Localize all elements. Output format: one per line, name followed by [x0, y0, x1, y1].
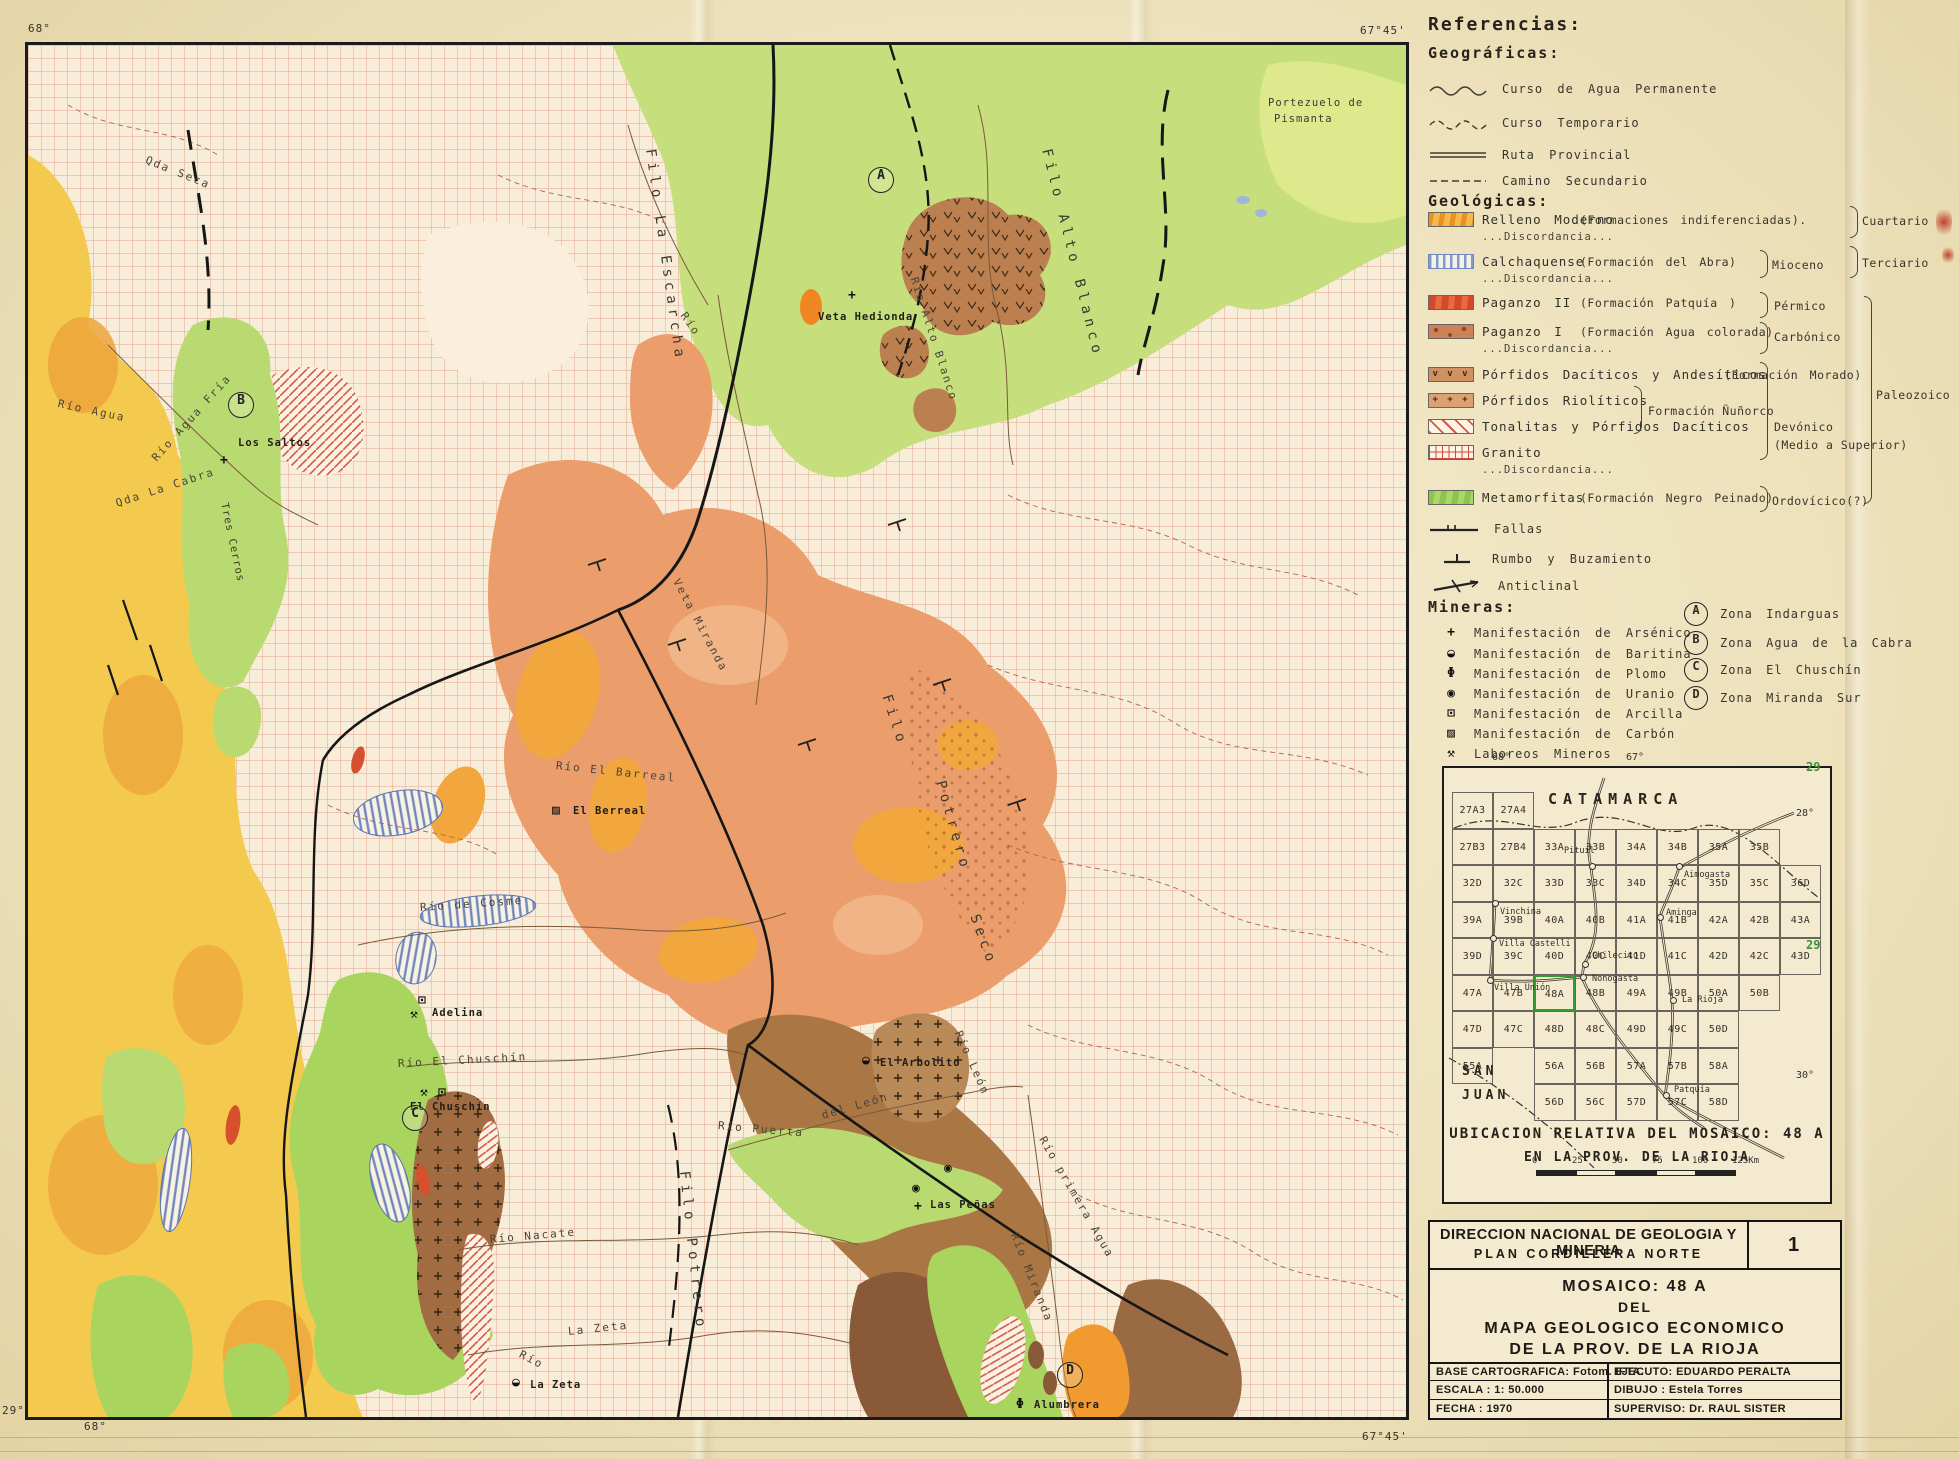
- index-cell-58A: 58A: [1698, 1048, 1739, 1085]
- map-mine-symbol: ⊡: [438, 1085, 446, 1100]
- zone-a-circle: A: [1684, 602, 1708, 626]
- map-mine-symbol: ⚒: [420, 1085, 428, 1100]
- clay-box-icon: ⊡: [1440, 706, 1462, 721]
- escala: ESCALA : 1: 50.000: [1436, 1384, 1544, 1396]
- index-cell-48C: 48C: [1575, 1011, 1616, 1048]
- legend-title: Referencias:: [1428, 14, 1582, 35]
- riolitico-swatch: [1428, 393, 1474, 408]
- legend-unit-dacitico: Pórfidos Dacíticos y Andesíticos(Formaci…: [1428, 367, 1959, 384]
- barite-halfcircle-icon: ◒: [1440, 646, 1462, 661]
- legend-item-anticlinal: Anticlinal: [1432, 575, 1580, 593]
- map-label: Veta Miranda: [670, 576, 730, 673]
- discordance-note: ...Discordancia...: [1482, 231, 1614, 243]
- map-label: El Berreal: [573, 805, 646, 817]
- map-label: Qda Seca: [144, 153, 213, 191]
- age-mioceno: Mioceno: [1772, 258, 1824, 272]
- map-mine-symbol: ◉: [944, 1161, 952, 1176]
- title-block: DIRECCION NACIONAL DE GEOLOGIA Y MINERIA…: [1428, 1220, 1842, 1420]
- dashed-line-icon: [1428, 174, 1490, 188]
- map-label: Tres Cerros: [218, 502, 246, 583]
- map-label: Seco: [966, 912, 999, 968]
- legend-zone-c: CZona El Chuschín: [1684, 658, 1862, 676]
- index-cell-57B: 57B: [1657, 1048, 1698, 1085]
- divider: [1430, 1362, 1840, 1364]
- city-dot-Chilecito: [1582, 961, 1589, 968]
- city-label: Vinchina: [1500, 907, 1541, 917]
- scalebar-tick: 100: [1692, 1156, 1708, 1166]
- index-cell-42A: 42A: [1698, 902, 1739, 939]
- legend-zone-a: AZona Indarguas: [1684, 602, 1840, 620]
- index-coordinate: 28°: [1796, 808, 1814, 819]
- index-cell-32D: 32D: [1452, 865, 1493, 902]
- map-label: Río Miranda: [1008, 1231, 1056, 1324]
- scalebar-segment: [1656, 1170, 1696, 1176]
- scalebar-tick: 50: [1612, 1156, 1623, 1166]
- discordance-note: ...Discordancia...: [1482, 273, 1614, 285]
- metamorfita-swatch: [1428, 490, 1474, 505]
- map-mine-symbol: Φ: [1016, 1397, 1024, 1412]
- map-zone-d: D: [1057, 1362, 1083, 1388]
- index-coordinate: 30°: [1796, 1070, 1814, 1081]
- map-title-main: MAPA GEOLOGICO ECONOMICO: [1430, 1320, 1840, 1338]
- era-paleozoico: Paleozoico: [1876, 388, 1950, 402]
- location-index-map: 27A327A427B327B433A33B34A34B35A35B32D32C…: [1442, 766, 1832, 1204]
- wavy-solid-line-icon: [1428, 82, 1490, 96]
- arsenic-cross-icon: +: [1440, 625, 1462, 640]
- index-cell-27B4: 27B4: [1493, 829, 1534, 866]
- map-label: Potrero: [932, 779, 973, 874]
- legend-zone-d: DZona Miranda Sur: [1684, 686, 1862, 704]
- strike-dip-icon: [1440, 552, 1480, 566]
- map-zone-b: B: [228, 392, 254, 418]
- index-coordinate: 67°: [1626, 752, 1644, 763]
- index-cell-56D: 56D: [1534, 1084, 1575, 1121]
- map-label: Adelina: [432, 1007, 483, 1019]
- index-cell-47D: 47D: [1452, 1011, 1493, 1048]
- index-cell-41C: 41C: [1657, 938, 1698, 975]
- discordance-note: ...Discordancia...: [1482, 464, 1614, 476]
- age-ordovicico: Ordovícico(?): [1772, 494, 1869, 508]
- era-brace: [1864, 296, 1872, 504]
- city-dot-Aimogasta: [1676, 863, 1683, 870]
- index-cell-56C: 56C: [1575, 1084, 1616, 1121]
- legend-geographic-title: Geográficas:: [1428, 44, 1560, 62]
- map-label: Río: [517, 1348, 546, 1372]
- index-cell-42C: 42C: [1739, 938, 1780, 975]
- map-label: El Arbolito: [880, 1057, 961, 1069]
- age-carbonico: Carbónico: [1774, 330, 1841, 344]
- scalebar-tick: 0: [1532, 1156, 1537, 1166]
- index-cell-27A3: 27A3: [1452, 792, 1493, 829]
- tonalita-swatch: [1428, 419, 1474, 434]
- map-mine-symbol: ◉: [912, 1181, 920, 1196]
- legend-item-curso-temporario: Curso Temporario: [1428, 112, 1640, 130]
- region-label: CATAMARCA: [1548, 790, 1683, 808]
- index-cell-57D: 57D: [1616, 1084, 1657, 1121]
- index-cell-42B: 42B: [1739, 902, 1780, 939]
- fault-line-icon: [1428, 522, 1482, 536]
- legend-item-carbon: ▨Manifestación de Carbón: [1440, 723, 1675, 741]
- map-title-del: DEL: [1430, 1299, 1840, 1315]
- map-label: Veta Hedionda: [818, 311, 913, 323]
- scalebar-segment: [1696, 1170, 1736, 1176]
- scalebar-tick: 75: [1652, 1156, 1663, 1166]
- legend-item-plomo: ΦManifestación de Plomo: [1440, 663, 1667, 681]
- map-title-mosaico: MOSAICO: 48 A: [1430, 1278, 1840, 1296]
- granito-swatch: [1428, 445, 1474, 460]
- index-cell-50A: 50A: [1698, 975, 1739, 1012]
- map-label: Río Agua Fría: [149, 372, 234, 464]
- map-label: Portezuelo de: [1268, 97, 1363, 109]
- map-label: Qda La Cabra: [114, 465, 216, 509]
- index-cell-35A: 35A: [1698, 829, 1739, 866]
- relleno-swatch: [1428, 212, 1474, 227]
- index-cell-33C: 33C: [1575, 865, 1616, 902]
- city-label: La Rioja: [1682, 995, 1723, 1005]
- legend-item-laboreos: ⚒Laboreos Mineros: [1440, 743, 1612, 761]
- legend-item-camino-secundario: Camino Secundario: [1428, 170, 1648, 188]
- map-mine-symbol: ▨: [552, 803, 560, 818]
- index-cell-49C: 49C: [1657, 1011, 1698, 1048]
- era-cuartario: Cuartario: [1862, 214, 1929, 228]
- age-brace: [1760, 362, 1768, 460]
- dibujo: DIBUJO : Estela Torres: [1614, 1384, 1743, 1396]
- paganzo2-swatch: [1428, 295, 1474, 310]
- age-permico: Pérmico: [1774, 299, 1826, 313]
- map-label: Río Alto Blanco: [908, 275, 960, 402]
- scalebar-tick: 125Km: [1732, 1156, 1759, 1166]
- wavy-dashed-line-icon: [1428, 116, 1490, 130]
- index-cell-39D: 39D: [1452, 938, 1493, 975]
- coal-hatched-box-icon: ▨: [1440, 726, 1462, 741]
- discordance-note: ...Discordancia...: [1482, 343, 1614, 355]
- map-label: del León: [820, 1090, 890, 1122]
- map-label: Pismanta: [1274, 113, 1333, 125]
- map-mine-symbol: +: [914, 1199, 922, 1214]
- city-dot-Aminga: [1657, 914, 1664, 921]
- calchaquense-swatch: [1428, 254, 1474, 269]
- index-cell-40B: 40B: [1575, 902, 1616, 939]
- index-cell-50D: 50D: [1698, 1011, 1739, 1048]
- index-cell-36D: 36D: [1780, 865, 1821, 902]
- city-dot-Pituil: [1589, 863, 1596, 870]
- divider: [1430, 1399, 1840, 1400]
- map-label: Alumbrera: [1034, 1399, 1100, 1411]
- map-label: La Zeta: [530, 1379, 581, 1391]
- legend-mining-title: Mineras:: [1428, 598, 1516, 616]
- map-label: Filo: [878, 693, 910, 749]
- city-label: Villa Castelli: [1499, 939, 1571, 949]
- age-devonico-detail: (Medio a Superior): [1774, 438, 1908, 452]
- index-map-title-line1: UBICACION RELATIVA DEL MOSAICO: 48 A: [1444, 1126, 1830, 1142]
- age-brace: [1760, 292, 1768, 318]
- age-brace: [1760, 486, 1768, 512]
- city-dot-Villa Castelli: [1490, 935, 1497, 942]
- legend-item-arcilla: ⊡Manifestación de Arcilla: [1440, 703, 1683, 721]
- scalebar-tick: 25: [1572, 1156, 1583, 1166]
- handwritten-note: 29: [1806, 938, 1820, 952]
- index-cell-56B: 56B: [1575, 1048, 1616, 1085]
- city-label: Villa Unión: [1494, 983, 1550, 993]
- index-coordinate: 68°: [1492, 752, 1510, 763]
- divider: [1430, 1380, 1840, 1381]
- map-label: Río Puerta: [717, 1119, 804, 1139]
- map-label: Las Peñas: [930, 1199, 996, 1211]
- map-mine-symbol: ◒: [512, 1375, 520, 1390]
- index-cell-34A: 34A: [1616, 829, 1657, 866]
- legend-item-baritina: ◒Manifestación de Baritina: [1440, 643, 1692, 661]
- index-cell-35B: 35B: [1739, 829, 1780, 866]
- age-brace: [1760, 250, 1768, 278]
- scalebar-segment: [1616, 1170, 1656, 1176]
- scalebar-segment: [1536, 1170, 1576, 1176]
- city-label: Aminga: [1666, 908, 1697, 918]
- map-mine-symbol: ⊡: [418, 993, 426, 1008]
- paper-fold-line: [0, 1451, 1959, 1452]
- index-cell-49B: 49B: [1657, 975, 1698, 1012]
- map-label: La Zeta: [567, 1319, 628, 1338]
- scalebar-segment: [1576, 1170, 1616, 1176]
- ejecuto: EJECUTO: EDUARDO PERALTA: [1614, 1366, 1791, 1378]
- legend-item-ruta-provincial: Ruta Provincial: [1428, 144, 1631, 162]
- dacitico-swatch: [1428, 367, 1474, 382]
- index-cell-39A: 39A: [1452, 902, 1493, 939]
- map-title-prov: DE LA PROV. DE LA RIOJA: [1430, 1341, 1840, 1359]
- coord-top-right: 67°45': [1360, 24, 1406, 37]
- era-brace: [1850, 246, 1858, 278]
- anticline-icon: [1432, 578, 1486, 594]
- divider: [1430, 1268, 1840, 1270]
- map-labels-layer: Qda SecaPortezuelo dePismantaFilo Alto B…: [28, 45, 1406, 1417]
- map-zone-a: A: [868, 167, 894, 193]
- legend-item-curso-permanente: Curso de Agua Permanente: [1428, 78, 1717, 96]
- superviso: SUPERVISO: Dr. RAUL SISTER: [1614, 1403, 1786, 1415]
- map-label: Río El Barreal: [555, 759, 676, 785]
- index-cell-56A: 56A: [1534, 1048, 1575, 1085]
- legend-item-fallas: Fallas: [1428, 518, 1543, 536]
- nunorco-brace: [1634, 386, 1642, 434]
- city-dot-La Rioja: [1670, 997, 1677, 1004]
- city-dot-Patquía: [1663, 1092, 1670, 1099]
- index-cell-27A4: 27A4: [1493, 792, 1534, 829]
- index-cell-43A: 43A: [1780, 902, 1821, 939]
- region-label: JUAN: [1462, 1088, 1509, 1103]
- geologic-map-canvas: Qda SecaPortezuelo dePismantaFilo Alto B…: [25, 42, 1409, 1420]
- coord-bottom-right-lon: 67°45': [1362, 1430, 1408, 1443]
- index-cell-48D: 48D: [1534, 1011, 1575, 1048]
- map-label: Río de Cosme: [420, 894, 524, 914]
- lead-circle-bar-icon: Φ: [1440, 666, 1462, 681]
- paganzo1-swatch: [1428, 324, 1474, 339]
- index-cell-42D: 42D: [1698, 938, 1739, 975]
- city-dot-Nonogasta: [1580, 974, 1587, 981]
- index-map-title-line2: EN LA PROV. DE LA RIOJA: [1444, 1150, 1830, 1165]
- index-cell-57A: 57A: [1616, 1048, 1657, 1085]
- map-mine-symbol: +: [848, 288, 856, 303]
- coord-bottom-left-lon: 68°: [84, 1420, 107, 1433]
- region-label: SAN: [1462, 1064, 1497, 1079]
- city-label: Patquía: [1674, 1085, 1710, 1095]
- map-mine-symbol: +: [220, 453, 228, 468]
- map-label: Los Saltos: [238, 437, 311, 449]
- map-label: Filo Alto Blanco: [1038, 147, 1106, 359]
- index-cell-41A: 41A: [1616, 902, 1657, 939]
- city-label: Chilecito: [1592, 951, 1638, 961]
- coord-top-left: 68°: [28, 22, 51, 35]
- map-label: Río primera Agua: [1036, 1134, 1116, 1260]
- map-mine-symbol: ⚒: [410, 1007, 418, 1022]
- fecha: FECHA : 1970: [1436, 1403, 1513, 1415]
- crossed-hammers-icon: ⚒: [1440, 746, 1462, 761]
- zone-c-circle: C: [1684, 658, 1708, 682]
- index-cell-27B3: 27B3: [1452, 829, 1493, 866]
- map-label: Río Agua: [57, 397, 127, 424]
- index-cell-49D: 49D: [1616, 1011, 1657, 1048]
- city-label: Aimogasta: [1684, 870, 1730, 880]
- map-label: Filo Potrero: [676, 1170, 709, 1332]
- city-dot-Vinchina: [1492, 900, 1499, 907]
- handwritten-note: 29: [1806, 760, 1820, 774]
- uranium-dot-circle-icon: ◉: [1440, 686, 1462, 701]
- zone-d-circle: D: [1684, 686, 1708, 710]
- legend-item-rumbo: Rumbo y Buzamiento: [1440, 548, 1652, 566]
- legend-item-arsenico: +Manifestación de Arsénico: [1440, 622, 1692, 640]
- legend-zone-b: BZona Agua de la Cabra: [1684, 631, 1913, 649]
- map-label: Río Nacate: [489, 1226, 576, 1246]
- map-label: Río El Chuschín: [398, 1050, 528, 1070]
- base-cartografica: BASE CARTOGRAFICA: Fotom. IFTA.: [1436, 1366, 1644, 1378]
- index-cell-47C: 47C: [1493, 1011, 1534, 1048]
- index-cell-50B: 50B: [1739, 975, 1780, 1012]
- age-devonico: Devónico: [1774, 420, 1833, 434]
- age-brace: [1760, 322, 1768, 354]
- paper-fold-line: [0, 1437, 1959, 1438]
- era-terciario: Terciario: [1862, 256, 1929, 270]
- map-mine-symbol: ◒: [862, 1053, 870, 1068]
- map-label: Filo La Escarcha: [642, 148, 688, 363]
- map-sheet: 68° 67°45' 29°22' 68° 67°45': [0, 0, 1959, 1459]
- index-cell-34B: 34B: [1657, 829, 1698, 866]
- legend-geologic-title: Geológicas:: [1428, 192, 1549, 210]
- legend-item-uranio: ◉Manifestación de Uranio: [1440, 683, 1675, 701]
- city-label: Nonogasta: [1592, 974, 1638, 984]
- index-cell-34D: 34D: [1616, 865, 1657, 902]
- map-zone-c: C: [402, 1105, 428, 1131]
- city-label: Pituil: [1564, 846, 1595, 856]
- zone-b-circle: B: [1684, 631, 1708, 655]
- nunorco-label: Formación Ñuñorco: [1648, 404, 1774, 418]
- org-plan: PLAN CORDILLERA NORTE: [1430, 1247, 1747, 1261]
- index-cell-32C: 32C: [1493, 865, 1534, 902]
- index-cell-35C: 35C: [1739, 865, 1780, 902]
- index-cell-33D: 33D: [1534, 865, 1575, 902]
- era-brace: [1850, 206, 1858, 238]
- city-dot-Villa Unión: [1487, 977, 1494, 984]
- double-line-icon: [1428, 148, 1490, 162]
- sheet-number: 1: [1747, 1234, 1840, 1257]
